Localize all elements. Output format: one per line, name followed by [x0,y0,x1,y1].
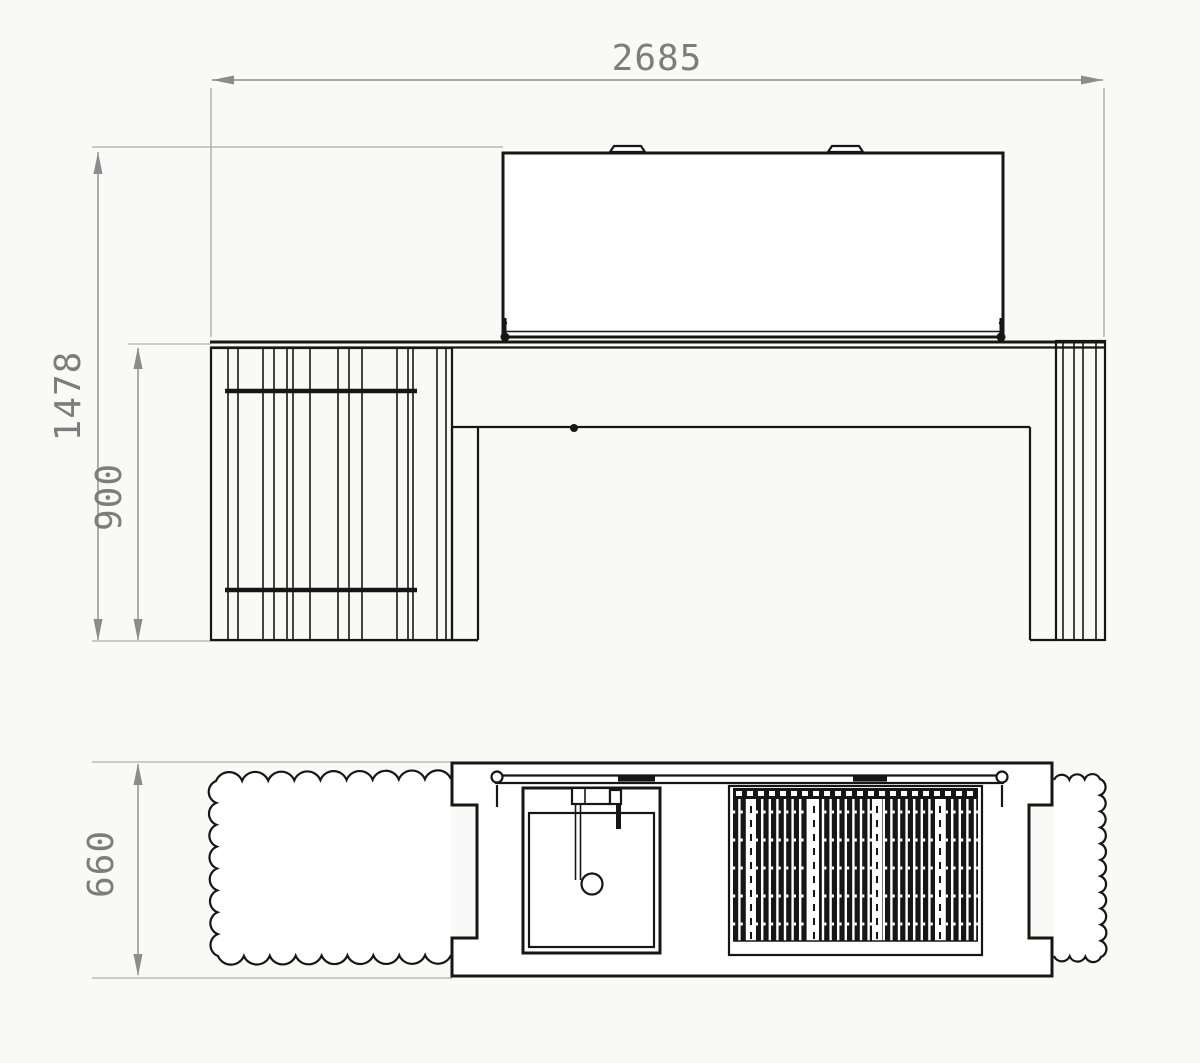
dimension-overall-height: 1478 [48,147,503,641]
arrowhead-down-icon [94,619,103,641]
arrowhead-up-icon [134,347,143,369]
dimension-label-worktop-height: 900 [89,463,130,531]
lid-panel [503,153,1003,337]
left-cabinet [211,348,452,640]
rail-handle-right [853,776,887,782]
worktop [210,342,1105,348]
rail-handle-left [618,776,655,782]
lid-handle-right [828,146,863,152]
arrowhead-right-icon [1081,76,1103,85]
latch-dot-icon [570,424,578,432]
dimension-label-overall-height: 1478 [48,351,89,442]
arrowhead-up-icon [134,763,143,785]
dimension-label-width: 2685 [612,38,703,79]
arrowhead-up-icon [94,152,103,174]
sink-plan [523,788,660,953]
left-leg [452,427,478,640]
right-slat-panel [1056,341,1105,640]
grill-front-strip [733,941,978,949]
front-elevation-view [210,146,1105,640]
right-panel-slats [1063,342,1096,639]
raised-lid [501,146,1006,342]
arrowhead-down-icon [134,619,143,641]
technical-drawing-sheet: 2685 1478 900 660 [0,0,1200,1063]
grill-plan [729,786,982,955]
arrowhead-left-icon [212,76,234,85]
faucet-head-icon [582,874,603,895]
arrowhead-down-icon [134,954,143,976]
right-leg [1030,427,1056,640]
table-frame [210,341,1105,640]
left-end-scalloped-top [209,770,451,964]
dimension-worktop-height: 900 [89,344,211,641]
drawing-canvas: 2685 1478 900 660 [0,0,1200,1063]
plan-view [209,763,1107,976]
faucet-lever-icon [616,804,621,829]
lid-handle-left [610,146,645,152]
dimension-label-depth: 660 [81,830,122,898]
right-end-scalloped-top [1054,774,1106,962]
